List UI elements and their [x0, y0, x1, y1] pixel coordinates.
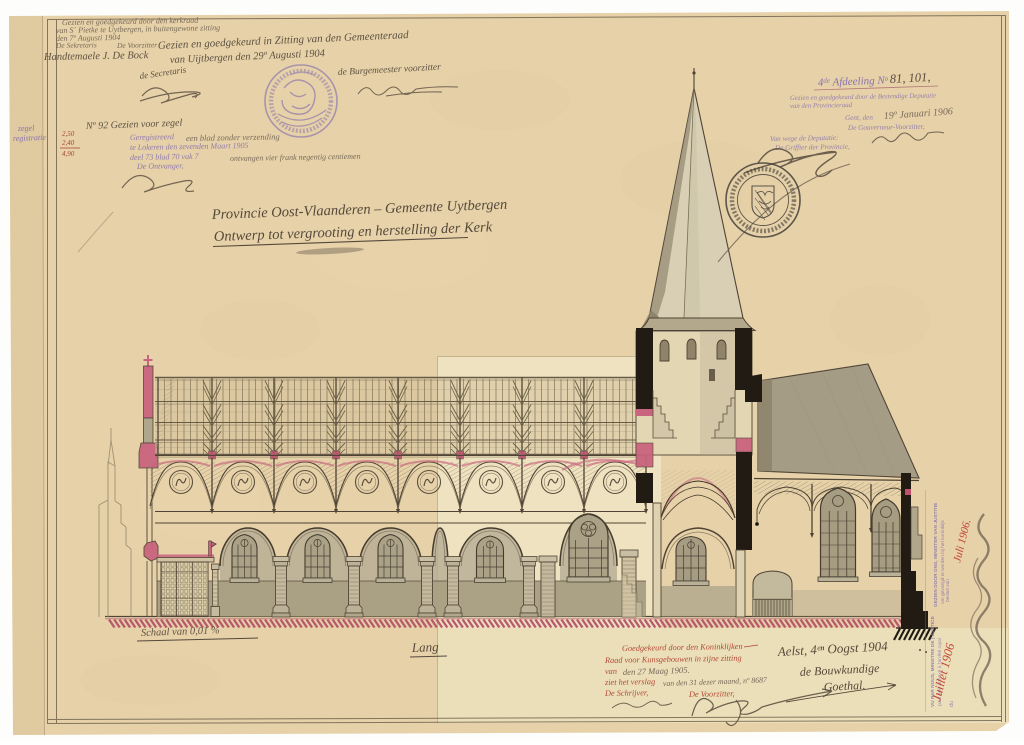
svg-text:2,40: 2,40: [62, 139, 75, 147]
svg-text:De Voorzitter: De Voorzitter: [116, 40, 157, 50]
svg-text:du: du: [949, 701, 955, 707]
svg-text:De Schrijver,: De Schrijver,: [604, 688, 648, 698]
svg-text:Handtemaele J. De Bock: Handtemaele J. De Bock: [43, 50, 149, 63]
svg-text:De Voorzitter,: De Voorzitter,: [688, 689, 735, 699]
svg-text:van: van: [605, 667, 617, 676]
svg-text:De Sekretaris: De Sekretaris: [55, 40, 97, 50]
svg-text:Geregistreerd: Geregistreerd: [130, 132, 175, 142]
svg-text:van den Provincieraad: van den Provincieraad: [790, 102, 853, 110]
svg-text:Gent, den: Gent, den: [845, 114, 873, 122]
svg-text:De Ontvanger,: De Ontvanger,: [136, 161, 184, 171]
svg-text:Van wege de Deputatie:: Van wege de Deputatie:: [770, 134, 839, 143]
svg-text:ziet het verslag: ziet het verslag: [604, 677, 655, 687]
svg-text:Lang: Lang: [411, 639, 440, 655]
svg-text:81, 101,: 81, 101,: [889, 70, 930, 86]
svg-text:registratie: registratie: [13, 133, 47, 143]
svg-text:2,50: 2,50: [62, 130, 75, 138]
svg-text:GEZIEN DOOR ONS, MINISTER VAN: GEZIEN DOOR ONS, MINISTER VAN JUSTITIE: [933, 502, 939, 607]
svg-text:besluit van: besluit van: [945, 579, 951, 602]
svg-text:deel 73 blad 70 vak 7: deel 73 blad 70 vak 7: [130, 152, 200, 162]
svg-text:zegel: zegel: [17, 123, 36, 133]
svg-text:4,90: 4,90: [62, 150, 75, 158]
svg-text:Goethal.: Goethal.: [823, 678, 865, 694]
svg-text:De Gouverneur-Voorzitter,: De Gouverneur-Voorzitter,: [847, 123, 925, 132]
